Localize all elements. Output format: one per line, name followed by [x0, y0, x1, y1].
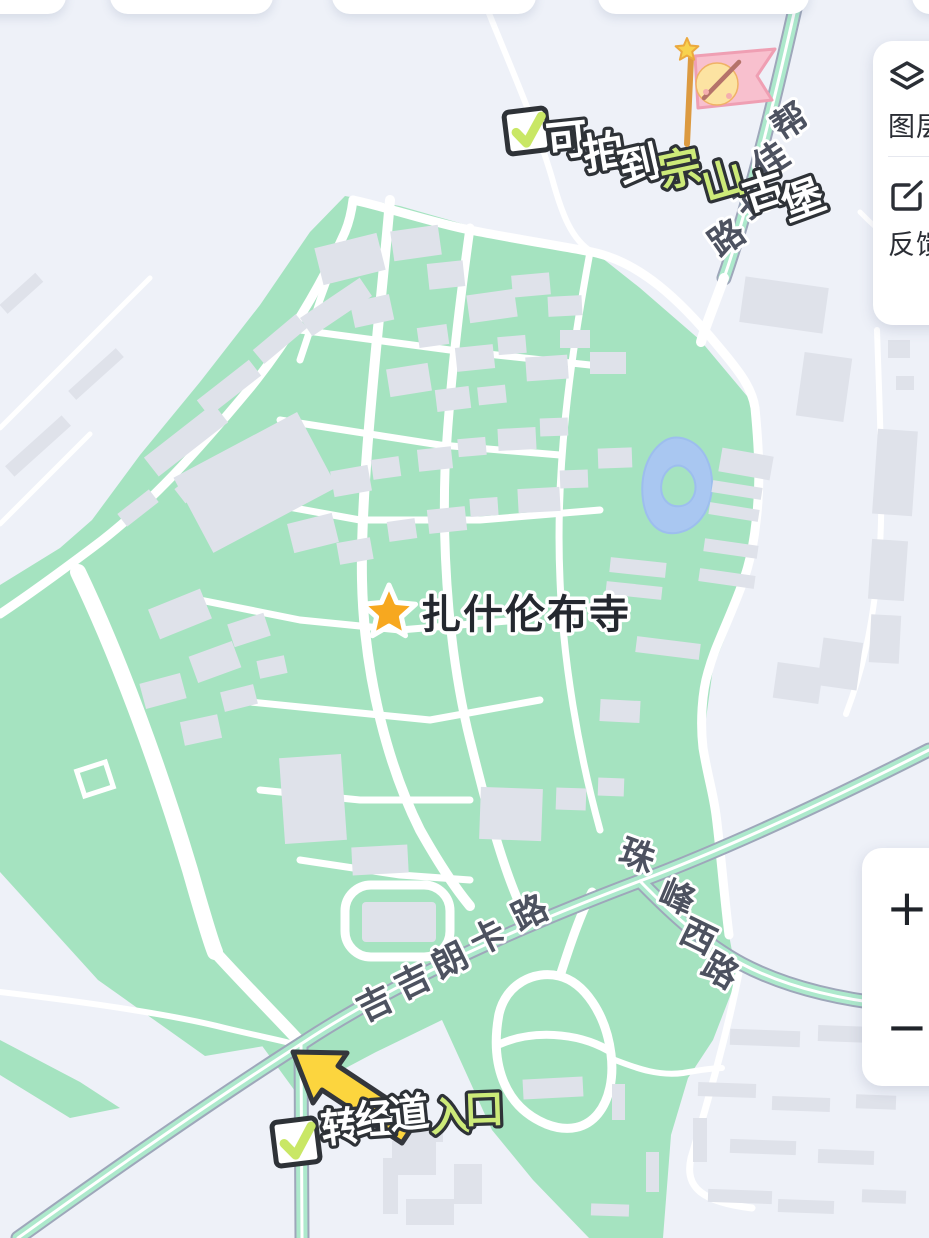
panel-divider [888, 156, 929, 157]
feedback-icon [888, 177, 926, 215]
map-screen: 帮 佳 孔 路 吉 吉 朗 卡 路 珠 峰 西 路 扎什伦布寺 可 拍 到 宗 … [0, 0, 929, 1238]
checkbox-icon [504, 108, 551, 155]
map-canvas[interactable]: 帮 佳 孔 路 吉 吉 朗 卡 路 珠 峰 西 路 扎什伦布寺 可 拍 到 宗 … [0, 0, 929, 1238]
checkbox-icon [271, 1117, 320, 1166]
layers-icon [888, 59, 926, 97]
svg-text:堡: 堡 [775, 171, 831, 230]
top-chip[interactable] [110, 0, 273, 14]
zoom-in-button[interactable]: + [862, 848, 929, 967]
layers-label: 图层 [888, 105, 929, 144]
poi-label: 扎什伦布寺 [421, 593, 631, 637]
stadium-infield [362, 902, 436, 942]
feedback-button[interactable]: 反馈 [873, 159, 929, 272]
zoom-panel: + − [862, 848, 929, 1086]
layers-button[interactable]: 图层 [873, 41, 929, 154]
zoom-out-button[interactable]: − [862, 967, 929, 1086]
map-tools-panel: 图层 反馈 [873, 41, 929, 325]
svg-text:口: 口 [463, 1087, 505, 1132]
top-chip[interactable] [0, 0, 66, 14]
feedback-label: 反馈 [888, 223, 929, 262]
top-chip[interactable] [332, 0, 536, 14]
svg-text:道: 道 [387, 1090, 431, 1138]
top-chip[interactable] [598, 0, 809, 14]
